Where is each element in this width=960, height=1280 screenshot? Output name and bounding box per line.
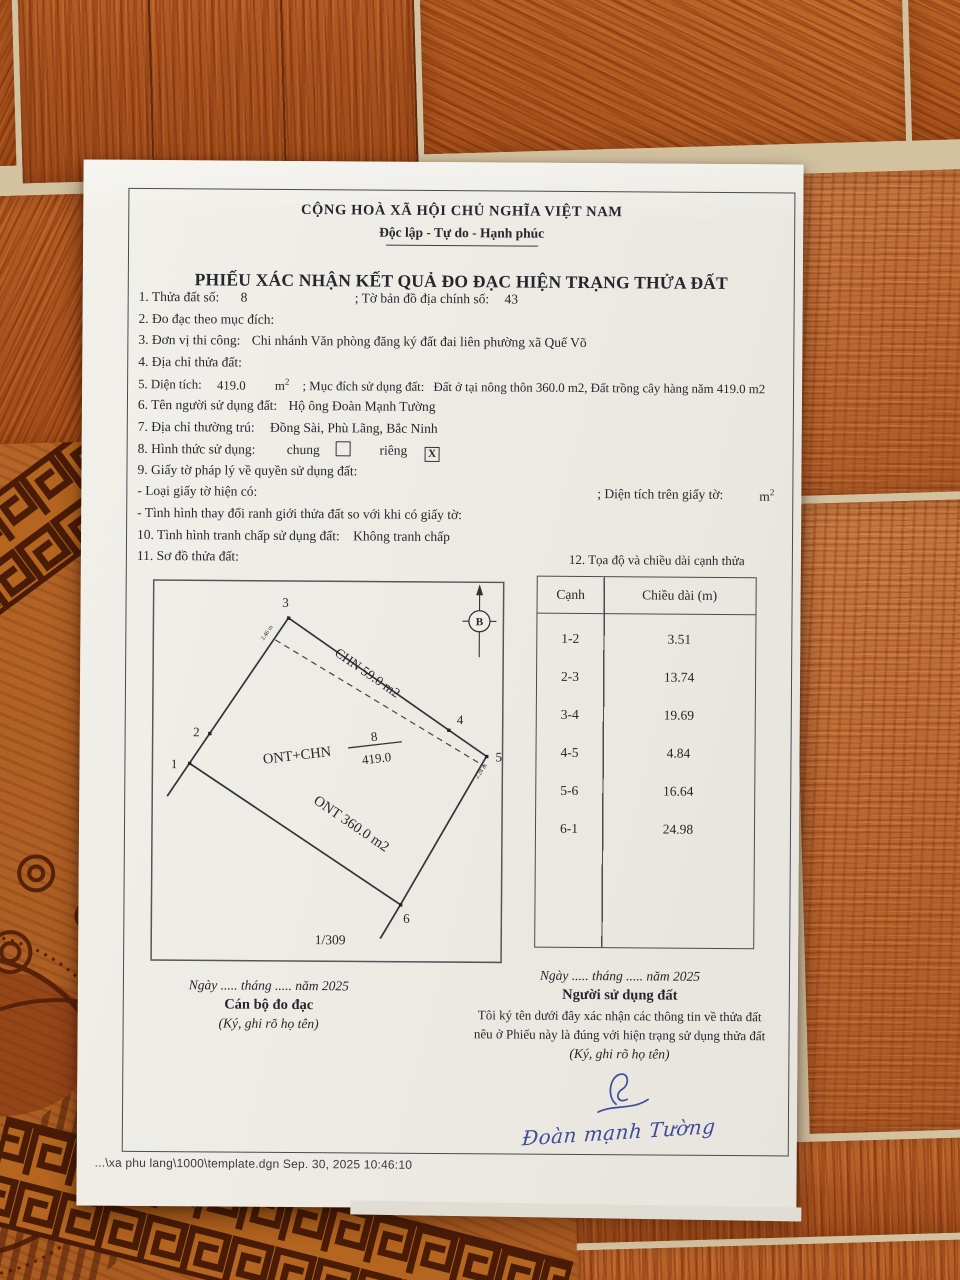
edge-length-table: Cạnh Chiều dài (m) 1-2 3.51 2-3 13.74 3-… xyxy=(534,576,757,950)
parcel-use-label: ONT+CHN xyxy=(262,744,333,768)
floor-tile xyxy=(16,0,419,183)
form-border-frame: CỘNG HOÀ XÃ HỘI CHỦ NGHĨA VIỆT NAM Độc l… xyxy=(122,188,796,1157)
length-cell: 19.69 xyxy=(603,707,755,724)
chn-area-label: CHN 59.0 m2 xyxy=(332,645,403,701)
length-cell: 13.74 xyxy=(603,669,755,686)
diagram-row: 1 2 3 4 5 6 2.46 m 2.28 m CHN 59.0 m2 ON… xyxy=(124,573,792,964)
photo-scene: CỘNG HOÀ XÃ HỘI CHỦ NGHĨA VIỆT NAM Độc l… xyxy=(0,0,960,1280)
parcel-number: 8 xyxy=(370,729,378,745)
checkbox-rieng-checked: X xyxy=(425,447,440,462)
vertex-label: 1 xyxy=(171,756,178,771)
user-name-value: Hộ ông Đoàn Mạnh Tường xyxy=(289,398,436,414)
vertex-label: 2 xyxy=(193,724,200,739)
residence-value: Đồng Sài, Phù Lãng, Bắc Ninh xyxy=(270,419,438,435)
area-value: 419.0 xyxy=(217,378,246,392)
form-header: CỘNG HOÀ XÃ HỘI CHỦ NGHĨA VIỆT NAM Độc l… xyxy=(129,201,795,295)
vertex-label: 6 xyxy=(403,911,410,926)
table-row: 5-6 16.64 xyxy=(536,772,754,812)
table-header: Cạnh Chiều dài (m) xyxy=(538,577,756,616)
map-sheet-value: 43 xyxy=(504,291,518,306)
signature-row: Ngày ..... tháng ..... năm 2025 Cán bộ đ… xyxy=(123,961,789,1154)
table-row: 3-4 19.69 xyxy=(537,696,755,736)
parcel-sketch: 1 2 3 4 5 6 2.46 m 2.28 m CHN 59.0 m2 ON… xyxy=(150,579,505,963)
parcel-area: 419.0 xyxy=(361,749,392,767)
confirmation-statement: Tôi ký tên dưới đây xác nhận các thông t… xyxy=(454,1005,786,1045)
length-cell: 4.84 xyxy=(602,745,754,762)
handwritten-signature-flourish xyxy=(574,1066,664,1119)
edge-cell: 5-6 xyxy=(536,783,602,799)
length-cell: 3.51 xyxy=(603,631,755,648)
parcel-number-value: 8 xyxy=(241,290,248,305)
floor-tile xyxy=(777,166,960,496)
date-line: Ngày ..... tháng ..... năm 2025 xyxy=(144,977,394,995)
survey-form-paper: CỘNG HOÀ XÃ HỘI CHỦ NGHĨA VIỆT NAM Độc l… xyxy=(76,159,803,1210)
national-heading: CỘNG HOÀ XÃ HỘI CHỦ NGHĨA VIỆT NAM xyxy=(129,201,794,223)
col-header-length: Chiều dài (m) xyxy=(604,587,756,604)
edge-tick-label: 2.46 m xyxy=(260,624,275,641)
dispute-value: Không tranh chấp xyxy=(353,528,450,544)
motto-underline xyxy=(386,245,538,247)
table-row: 4-5 4.84 xyxy=(536,734,754,774)
compass-letter: B xyxy=(476,616,484,628)
surveyor-signature-block: Ngày ..... tháng ..... năm 2025 Cán bộ đ… xyxy=(144,977,394,1033)
parcel-boundary xyxy=(166,617,487,939)
sign-note: (Ký, ghi rõ họ tên) xyxy=(144,1015,394,1033)
coords-table-heading: 12. Tọa độ và chiều dài cạnh thửa xyxy=(569,552,745,569)
ont-area-label: ONT 360.0 m2 xyxy=(310,793,392,856)
parcel-id-fraction: ONT+CHN 8 419.0 xyxy=(261,726,404,779)
col-header-edge: Cạnh xyxy=(538,587,604,603)
floor-tile xyxy=(906,0,960,141)
edge-cell: 2-3 xyxy=(537,669,603,685)
land-user-role: Người sử dụng đất xyxy=(454,986,786,1005)
floor-tile xyxy=(0,0,16,168)
form-fields: 1. Thửa đất số: 8 ; Tờ bản đồ địa chính … xyxy=(137,289,786,574)
national-motto: Độc lập - Tự do - Hạnh phúc xyxy=(129,223,794,244)
edge-cell: 6-1 xyxy=(536,821,602,837)
surveyor-role: Cán bộ đo đạc xyxy=(144,996,394,1015)
area-unit: m2 xyxy=(275,378,290,392)
north-compass-icon: B xyxy=(462,584,497,657)
paper-area-unit: m2 xyxy=(759,488,774,510)
floor-tile xyxy=(577,1235,960,1280)
edge-tick-label: 2.28 m xyxy=(474,763,489,780)
sketch-box xyxy=(151,580,504,962)
surveyor-unit-value: Chi nhánh Văn phòng đăng ký đất đai liên… xyxy=(252,333,587,350)
vertex-label: 3 xyxy=(282,595,289,610)
land-user-signature-block: Ngày ..... tháng ..... năm 2025 Người sử… xyxy=(453,967,786,1145)
table-row: 6-1 24.98 xyxy=(536,810,754,850)
vertex-label: 5 xyxy=(495,749,502,764)
edge-cell: 3-4 xyxy=(537,707,603,723)
date-line: Ngày ..... tháng ..... năm 2025 xyxy=(454,967,786,985)
table-row: 1-2 3.51 xyxy=(537,620,755,660)
plot-file-footer: ...\xa phu lang\1000\template.dgn Sep. 3… xyxy=(95,1156,413,1172)
sign-note: (Ký, ghi rõ họ tên) xyxy=(453,1045,785,1063)
edge-cell: 4-5 xyxy=(536,745,602,761)
table-body: 1-2 3.51 2-3 13.74 3-4 19.69 4-5 4.84 xyxy=(535,614,755,949)
table-row: 2-3 13.74 xyxy=(537,658,755,698)
land-use-value: Đất ở tại nông thôn 360.0 m2, Đất trồng … xyxy=(433,380,765,396)
floor-tile xyxy=(0,194,94,449)
field-sketch-heading: 11. Sơ đồ thửa đất: 12. Tọa độ và chiều … xyxy=(137,548,784,574)
floor-tile xyxy=(418,0,906,154)
floor-tile xyxy=(792,496,960,1134)
length-cell: 24.98 xyxy=(602,821,754,838)
vertex-label: 4 xyxy=(457,712,464,727)
checkbox-chung xyxy=(335,441,350,456)
edge-cell: 1-2 xyxy=(537,631,603,647)
adjacent-sheet-ref: 1/309 xyxy=(315,932,346,947)
length-cell: 16.64 xyxy=(602,783,754,800)
